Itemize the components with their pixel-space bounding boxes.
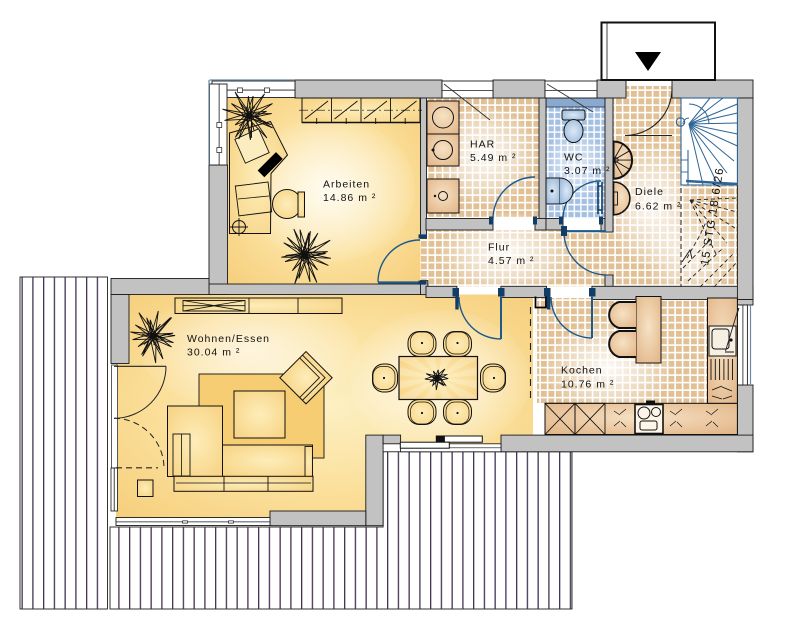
- svg-text:HAR: HAR: [470, 139, 495, 151]
- svg-text:5.49 m ²: 5.49 m ²: [470, 152, 517, 164]
- svg-text:Wohnen/Essen: Wohnen/Essen: [187, 333, 270, 345]
- svg-text:3.07 m ²: 3.07 m ²: [564, 165, 611, 177]
- svg-text:Flur: Flur: [488, 242, 510, 254]
- svg-text:6.62 m ²: 6.62 m ²: [635, 201, 682, 213]
- svg-text:14.86 m ²: 14.86 m ²: [323, 192, 376, 204]
- svg-text:Kochen: Kochen: [561, 365, 603, 377]
- svg-text:Diele: Diele: [635, 186, 664, 198]
- svg-text:4.57 m ²: 4.57 m ²: [488, 255, 535, 267]
- svg-text:WC: WC: [564, 152, 584, 164]
- svg-text:10.76 m ²: 10.76 m ²: [561, 379, 614, 391]
- svg-text:Arbeiten: Arbeiten: [323, 179, 370, 191]
- svg-text:30.04 m ²: 30.04 m ²: [187, 347, 240, 359]
